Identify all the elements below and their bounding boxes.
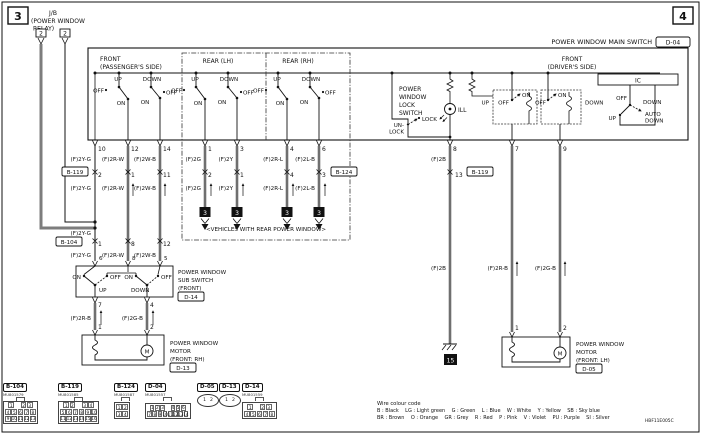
component-label: POWER WINDOW	[178, 270, 227, 276]
relay-wire-thin	[65, 44, 95, 222]
wire-label: (F)2Y-G	[71, 231, 91, 237]
connector-id: D-13	[219, 383, 240, 392]
ill-label: ILL	[458, 107, 467, 114]
pin-cell: 2	[232, 398, 235, 403]
motor-coil-icon	[510, 337, 561, 362]
sw-down-label: DOWN	[643, 100, 661, 106]
driver-down-relay: OFF ON DOWN	[535, 72, 603, 141]
connector-part-number: MU801559	[242, 393, 277, 397]
pin-cell: 1	[247, 404, 253, 410]
pin-cell: 16	[91, 416, 97, 422]
pin-cell: 4	[122, 411, 128, 417]
pin-cell: 8	[30, 409, 36, 415]
to-sheet-ref: 3	[317, 210, 321, 217]
motor-symbol: M	[558, 352, 563, 358]
pin-number: 13	[455, 172, 463, 179]
pin-cell: 7	[147, 411, 152, 417]
driver-wire-columns	[448, 146, 566, 344]
pin-number: 2	[150, 324, 154, 331]
sw-on-label: ON	[276, 101, 285, 107]
pin-number: 1	[131, 172, 135, 179]
connector-fork-icon	[62, 38, 68, 44]
inline-connector-mark	[203, 170, 322, 175]
pin-cell: 8	[269, 411, 275, 417]
relay-coil-icon	[567, 92, 572, 124]
connector-keyway	[255, 397, 264, 401]
lock-switch-label-3: LOCK	[399, 102, 416, 109]
wire-colour-code: Wire colour code B : Black LG : Light gr…	[377, 401, 610, 422]
pin-number: 12	[131, 146, 139, 153]
sw-down-label: DOWN	[302, 77, 320, 83]
sw-up-label: UP	[609, 116, 617, 122]
ic-block: IC	[598, 74, 678, 85]
pin-cell: 12	[66, 416, 72, 422]
pin-cell: 14	[79, 416, 85, 422]
wire-label: (F)2R-W	[102, 186, 125, 192]
pin-cell: 14	[184, 411, 189, 417]
colour-code-line-1: B : Black LG : Light green G : Green L :…	[377, 408, 610, 415]
component-label: MOTOR	[576, 350, 597, 356]
pin-number: 8	[132, 256, 136, 262]
lock-switch-label-4: SWITCH	[399, 110, 423, 117]
section-front-driver-2: (DRIVER'S SIDE)	[548, 64, 597, 71]
pin-number: 1	[240, 172, 244, 179]
section-rear-rh: REAR (RH)	[282, 58, 314, 65]
junction-block-relay: J/B (POWER WINDOW RELAY) 2 2	[31, 10, 97, 230]
pin-number: 1	[515, 325, 519, 332]
pin-number: 2	[98, 172, 102, 179]
sw-up-label: UP	[273, 77, 281, 83]
connector-pin-grid: 12345678	[242, 402, 277, 419]
pin-number: 6	[99, 256, 103, 262]
pin-cell: 6	[18, 409, 24, 415]
pin-cell: 1	[203, 398, 206, 403]
sheet-number-right: 4	[673, 7, 693, 24]
resistor-branch	[469, 72, 493, 97]
illumination-lamp: ILL	[440, 72, 467, 141]
pin-number: 12	[163, 241, 171, 248]
connector-pin-grid: 12345678910111213141516	[58, 401, 99, 424]
pin-cell: 11	[18, 416, 24, 422]
pin-cell: 4	[88, 402, 94, 408]
pin-cell: 10	[91, 409, 97, 415]
connector-block-D-13: D-1312	[219, 373, 241, 407]
sw-on-label: ON	[300, 100, 309, 106]
pin-number: 3	[322, 172, 326, 179]
wire-label: (F)2B	[431, 157, 446, 163]
pin-cell: 2	[260, 404, 266, 410]
pin-cell: 8	[152, 411, 157, 417]
to-sheet-ref: 3	[285, 210, 289, 217]
sw-off-label: OFF	[535, 101, 546, 107]
sw-on-label: ON	[218, 100, 227, 106]
sw-off-label: OFF	[253, 89, 264, 95]
to-sheet-ref: 3	[203, 210, 207, 217]
pin-cell: 7	[73, 409, 79, 415]
pin-cell: 5	[60, 409, 66, 415]
pin-cell: 3	[116, 411, 122, 417]
sw-off-label: OFF	[325, 91, 336, 97]
motor-coil-icon	[93, 335, 148, 360]
ground-terminal: 15	[442, 344, 457, 365]
pin-cell: 4	[171, 405, 176, 411]
pin-cell: 8	[79, 409, 85, 415]
pin-cell: 1	[225, 398, 228, 403]
auto-down-label-1: AUTO	[645, 112, 661, 118]
pin-number: 2	[208, 172, 212, 179]
pin-number: 2	[563, 325, 567, 332]
wiring-diagram-page: 3 4 J/B (POWER WINDOW RELAY) 2 2 POWER W…	[0, 0, 701, 435]
pin-number: 9	[563, 146, 567, 153]
connector-block-B-104: B-104MU80157912345678910111213	[3, 373, 38, 424]
sw-off-label: OFF	[498, 101, 509, 107]
ic-label: IC	[635, 78, 641, 85]
pin-number: 6	[322, 146, 326, 153]
pin-cell: 15	[85, 416, 91, 422]
pin-cell: 6	[181, 405, 186, 411]
auto-down-switch: OFF DOWN UP AUTO DOWN	[609, 85, 664, 125]
pin-cell: 9	[85, 409, 91, 415]
pin-number: 11	[163, 172, 171, 179]
wire-label: (F)2R-B	[488, 266, 509, 272]
diagram-code: HBF11E005C	[645, 419, 674, 424]
resistor-icon	[469, 73, 493, 96]
connector-id: D-05	[197, 383, 218, 392]
pin-cell: 3	[27, 402, 33, 408]
connector-block-D-05: D-0512	[197, 373, 219, 407]
connector-part-number: MU801587	[114, 393, 138, 397]
unlock-label-2: LOCK	[389, 130, 404, 136]
sheet-left-label: 3	[14, 10, 22, 23]
sw-up-label: UP	[191, 77, 199, 83]
wire-label: (F)2R-L	[263, 157, 284, 163]
pin-cell: 3	[266, 404, 272, 410]
connector-fork-icon	[38, 38, 44, 44]
power-window-lock-switch: POWER WINDOW LOCK SWITCH LOCK UN- LOCK	[389, 72, 451, 139]
connector-id: B-119	[58, 383, 82, 392]
connector-id: D-14	[242, 383, 263, 392]
pin-number: 10	[98, 146, 106, 153]
pin-cell: 3	[82, 402, 88, 408]
wire-label: (F)2W-B	[134, 253, 156, 259]
component-label: POWER WINDOW	[576, 342, 625, 348]
wire-label: (F)2G	[186, 157, 201, 163]
pin-cell: 5	[250, 411, 256, 417]
motor-symbol: M	[145, 350, 150, 356]
relay-title-1: J/B	[48, 10, 57, 17]
connector-oval: 12	[219, 394, 241, 407]
pin-number: 7	[98, 302, 102, 309]
section-rear-lh: REAR (LH)	[203, 58, 234, 65]
pin-number: 4	[290, 146, 294, 153]
wire-label: (F)2L-B	[295, 157, 315, 163]
pin-cell: 7	[263, 411, 269, 417]
pin-number: 4	[290, 172, 294, 179]
unlock-label-1: UN-	[394, 123, 404, 129]
component-label: (FRONT: RH)	[170, 357, 205, 363]
sw-down-label: DOWN	[131, 288, 149, 294]
pin-cell: 12	[24, 416, 30, 422]
connector-ref: D-13	[176, 366, 190, 372]
sw-up-label: UP	[99, 288, 107, 294]
passenger-wire-columns	[93, 146, 166, 261]
connector-oval: 12	[197, 394, 219, 407]
pin-cell: 1	[150, 405, 155, 411]
rear-option-note: <VEHICLES WITH REAR POWER WINDOW>	[206, 227, 326, 233]
to-sheet-ref: 3	[235, 210, 239, 217]
resistor-icon	[447, 73, 453, 104]
wiring-diagram: 3 4 J/B (POWER WINDOW RELAY) 2 2 POWER W…	[0, 0, 701, 435]
wire-label: (F)2Y	[218, 157, 233, 163]
lock-switch-label-2: WINDOW	[399, 94, 427, 101]
wire-label: (F)2Y-G	[71, 186, 91, 192]
wire-label: (F)2R-W	[102, 157, 125, 163]
pin-cell: 6	[257, 411, 263, 417]
pin-cell: 10	[11, 416, 17, 422]
component-label: MOTOR	[170, 349, 191, 355]
relay-title-2: (POWER WINDOW	[31, 18, 85, 25]
auto-down-label-2: DOWN	[645, 119, 663, 125]
pin-cell: 7	[24, 409, 30, 415]
component-label: POWER WINDOW	[170, 341, 219, 347]
colour-code-line-2: BR : Brown O : Orange GR : Grey R : Red …	[377, 415, 610, 422]
pin-cell: 1	[63, 402, 69, 408]
connector-pin-grid: 1234567891011121314	[145, 403, 191, 418]
component-label: (FRONT)	[178, 286, 201, 292]
pin-number: 4	[150, 302, 154, 309]
sw-down-label: DOWN	[143, 77, 161, 83]
pin-number: 7	[515, 146, 519, 153]
pin-cell: 5	[176, 405, 181, 411]
connector-ref: B-119	[472, 170, 489, 176]
wire-label: (F)2B	[431, 266, 446, 272]
pin-cell: 2	[155, 405, 160, 411]
sw-on-label: ON	[194, 101, 203, 107]
sw-off-label: OFF	[616, 96, 627, 102]
wire-label: (F)2R-L	[263, 186, 284, 192]
sw-off-label: OFF	[110, 275, 121, 281]
lock-switch-label-1: POWER	[399, 86, 421, 93]
pin-cell: 2	[122, 404, 128, 410]
pin-cell: 2	[70, 402, 76, 408]
component-label: SUB SWITCH	[178, 278, 213, 284]
connector-id: B-104	[3, 383, 27, 392]
connector-pin-grid: 1234	[114, 402, 130, 419]
main-switch-connector: D-04	[666, 40, 681, 47]
connector-keyway	[121, 397, 130, 401]
connector-id: D-04	[145, 383, 166, 392]
pin-cell: 5	[11, 409, 17, 415]
wire-label: (F)2Y-G	[71, 253, 91, 259]
pin-number: 1	[98, 324, 102, 331]
main-switch-pin-exits	[93, 73, 563, 146]
power-window-motor-front-rh: M	[82, 330, 164, 365]
power-window-motor-front-lh: M	[502, 332, 570, 367]
power-window-sub-switch	[76, 261, 173, 303]
wire-label: (F)2R-W	[102, 253, 125, 259]
pin-number: 3	[240, 146, 244, 153]
sw-on-label: ON	[124, 275, 133, 281]
sw-down-label: DOWN	[585, 101, 603, 107]
connector-ref: D-14	[184, 295, 198, 301]
rear-wire-columns	[203, 146, 326, 207]
pin-number: 14	[163, 146, 171, 153]
driver-up-relay: OFF ON UP	[482, 72, 537, 141]
wire-label: (F)2R-B	[71, 316, 92, 322]
pin-cell: 4	[5, 409, 11, 415]
connector-part-number: MU801585	[58, 393, 99, 397]
pin-cell: 13	[30, 416, 36, 422]
section-front-driver-1: FRONT	[562, 56, 583, 63]
pin-cell: 11	[60, 416, 66, 422]
sheet-number-left: 3	[8, 7, 28, 24]
ground-icon	[442, 345, 456, 350]
pin-number: 1	[208, 146, 212, 153]
sw-off-label: OFF	[161, 275, 172, 281]
connector-keyway	[163, 397, 172, 401]
pin-cell: 3	[160, 405, 165, 411]
wire-label: (F)2G-B	[122, 316, 143, 322]
main-switch-title: POWER WINDOW MAIN SWITCH	[551, 38, 652, 46]
connector-ref: B-104	[61, 240, 78, 246]
relay-pin-right: 2	[63, 31, 67, 38]
pin-cell: 2	[210, 398, 213, 403]
sw-on-label: ON	[117, 101, 126, 107]
connector-block-D-04: D-04MU8015571234567891011121314	[145, 373, 191, 420]
section-front-passenger-2: (PASSENGER'S SIDE)	[100, 64, 162, 71]
pin-number: 8	[453, 146, 457, 153]
relay-wire-thick	[41, 44, 95, 228]
sw-up-label: UP	[114, 77, 122, 83]
section-front-passenger-1: FRONT	[100, 56, 121, 63]
sw-up-label: UP	[482, 101, 490, 107]
wire-label: (F)2W-B	[134, 157, 156, 163]
pin-cell: 2	[21, 402, 27, 408]
pin-cell: 13	[73, 416, 79, 422]
connector-pin-grid: 12345678910111213	[3, 401, 38, 424]
pin-number: 5	[164, 256, 168, 262]
pin-cell: 9	[5, 416, 11, 422]
connector-part-number: MU801579	[3, 393, 38, 397]
ground-ref: 15	[447, 358, 455, 365]
connector-ref: B-119	[67, 170, 84, 176]
wire-label: (F)2Y	[218, 186, 233, 192]
wire-label: (F)2G-B	[535, 266, 556, 272]
wire-label: (F)2W-B	[134, 186, 156, 192]
wire-label: (F)2L-B	[295, 186, 315, 192]
component-label: (FRONT: LH)	[576, 358, 610, 364]
connector-id: B-124	[114, 383, 138, 392]
sw-on-label: ON	[72, 275, 81, 281]
wire-label: (F)2G	[186, 186, 201, 192]
lock-position-label: LOCK	[422, 117, 437, 123]
sheet-right-label: 4	[679, 10, 687, 23]
pin-cell: 6	[66, 409, 72, 415]
sw-down-label: DOWN	[220, 77, 238, 83]
connector-block-D-14: D-14MU80155912345678	[242, 373, 277, 420]
sw-on-label: ON	[558, 93, 567, 99]
connector-block-B-119: B-119MU80158512345678910111213141516	[58, 373, 99, 424]
wire-label: (F)2Y-G	[71, 157, 91, 163]
connector-ref: B-124	[336, 170, 353, 176]
sw-off-label: OFF	[171, 89, 182, 95]
sw-on-label: ON	[141, 100, 150, 106]
relay-pin-left: 2	[39, 31, 43, 38]
pin-cell: 1	[116, 404, 122, 410]
pin-number: 1	[98, 241, 102, 248]
pin-cell: 1	[8, 402, 14, 408]
pin-cell: 4	[244, 411, 250, 417]
connector-block-B-124: B-124MU8015871234	[114, 373, 138, 420]
pin-number: 8	[131, 241, 135, 248]
